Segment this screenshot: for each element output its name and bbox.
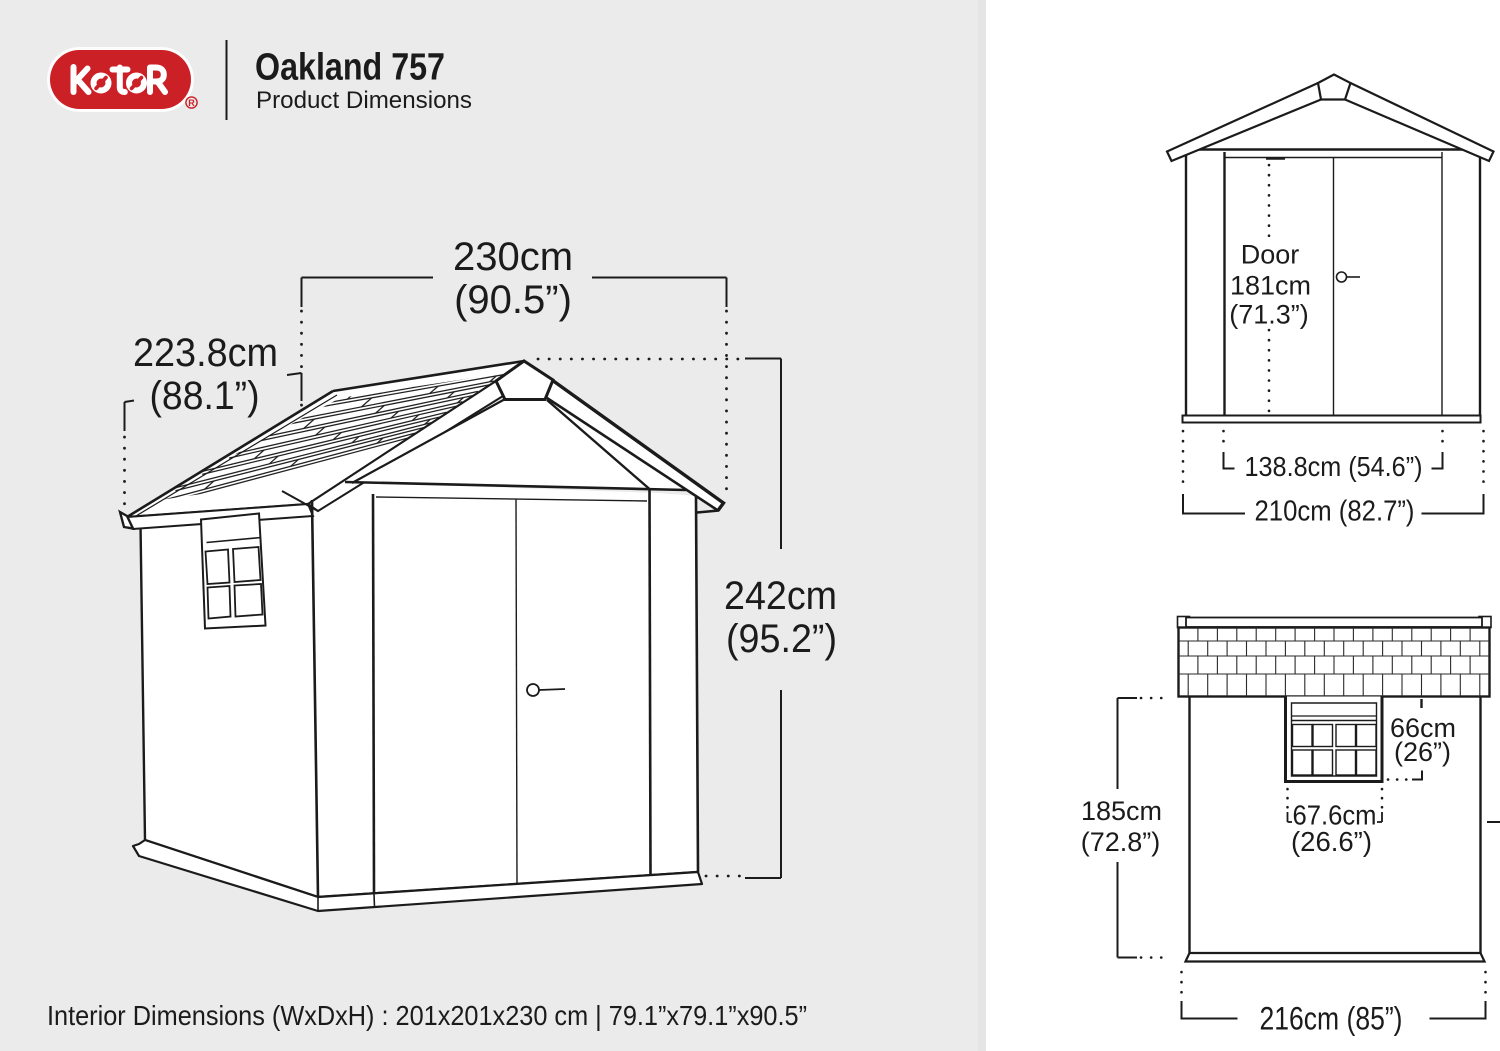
svg-text:(88.1”): (88.1”) <box>150 374 260 418</box>
svg-text:181cm: 181cm <box>1230 271 1311 301</box>
svg-text:(90.5”): (90.5”) <box>454 278 572 322</box>
svg-text:Interior Dimensions (WxDxH) :: Interior Dimensions (WxDxH) : 201x201x23… <box>47 1000 807 1031</box>
svg-text:(26.6”): (26.6”) <box>1291 826 1372 857</box>
svg-text:R: R <box>188 98 195 108</box>
svg-text:138.8cm (54.6”): 138.8cm (54.6”) <box>1245 451 1423 482</box>
svg-text:210cm (82.7”): 210cm (82.7”) <box>1255 496 1415 528</box>
svg-text:(71.3”): (71.3”) <box>1229 300 1309 330</box>
svg-text:Oakland 757: Oakland 757 <box>255 47 445 89</box>
svg-text:(26”): (26”) <box>1394 737 1451 767</box>
svg-text:216cm (85”): 216cm (85”) <box>1260 1001 1403 1037</box>
svg-text:Product Dimensions: Product Dimensions <box>256 87 472 114</box>
svg-text:223.8cm: 223.8cm <box>133 331 278 375</box>
svg-text:230cm: 230cm <box>453 235 573 279</box>
svg-text:(95.2”): (95.2”) <box>726 617 837 661</box>
svg-text:242cm: 242cm <box>724 574 837 618</box>
svg-text:(72.8”): (72.8”) <box>1081 827 1161 857</box>
svg-text:185cm: 185cm <box>1081 796 1162 826</box>
svg-text:Door: Door <box>1241 240 1300 270</box>
